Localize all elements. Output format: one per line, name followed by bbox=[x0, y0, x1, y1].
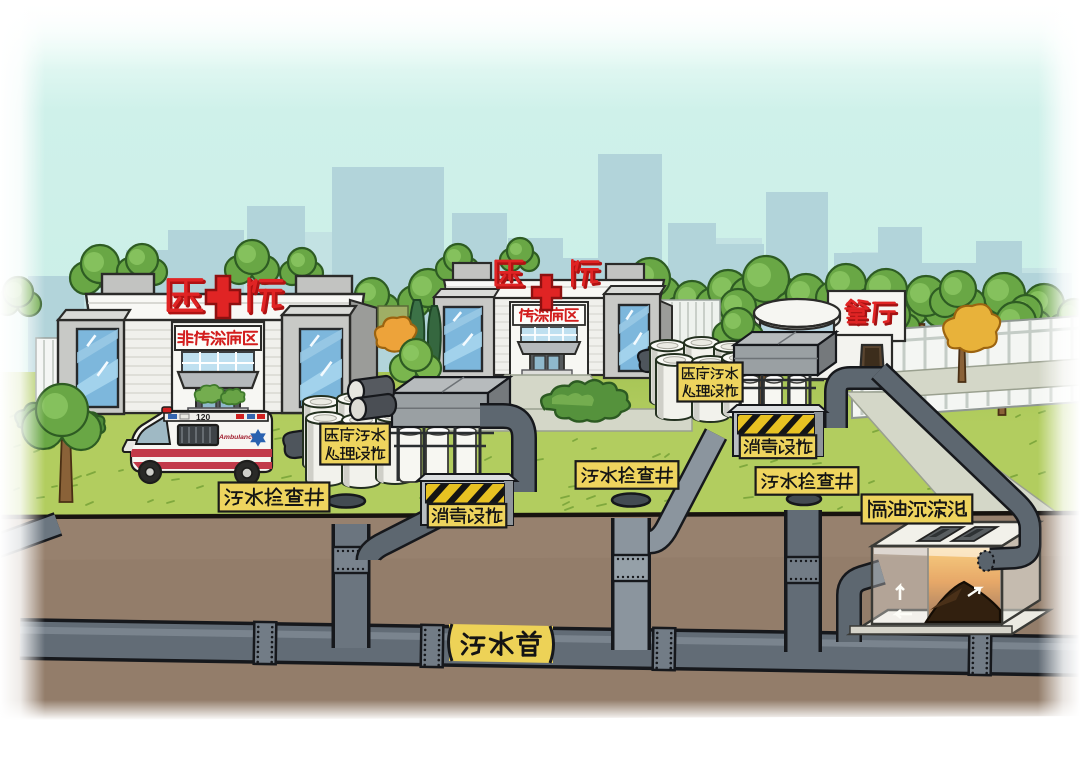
svg-text:Ambulance: Ambulance bbox=[218, 434, 256, 441]
svg-text:120: 120 bbox=[196, 412, 210, 422]
